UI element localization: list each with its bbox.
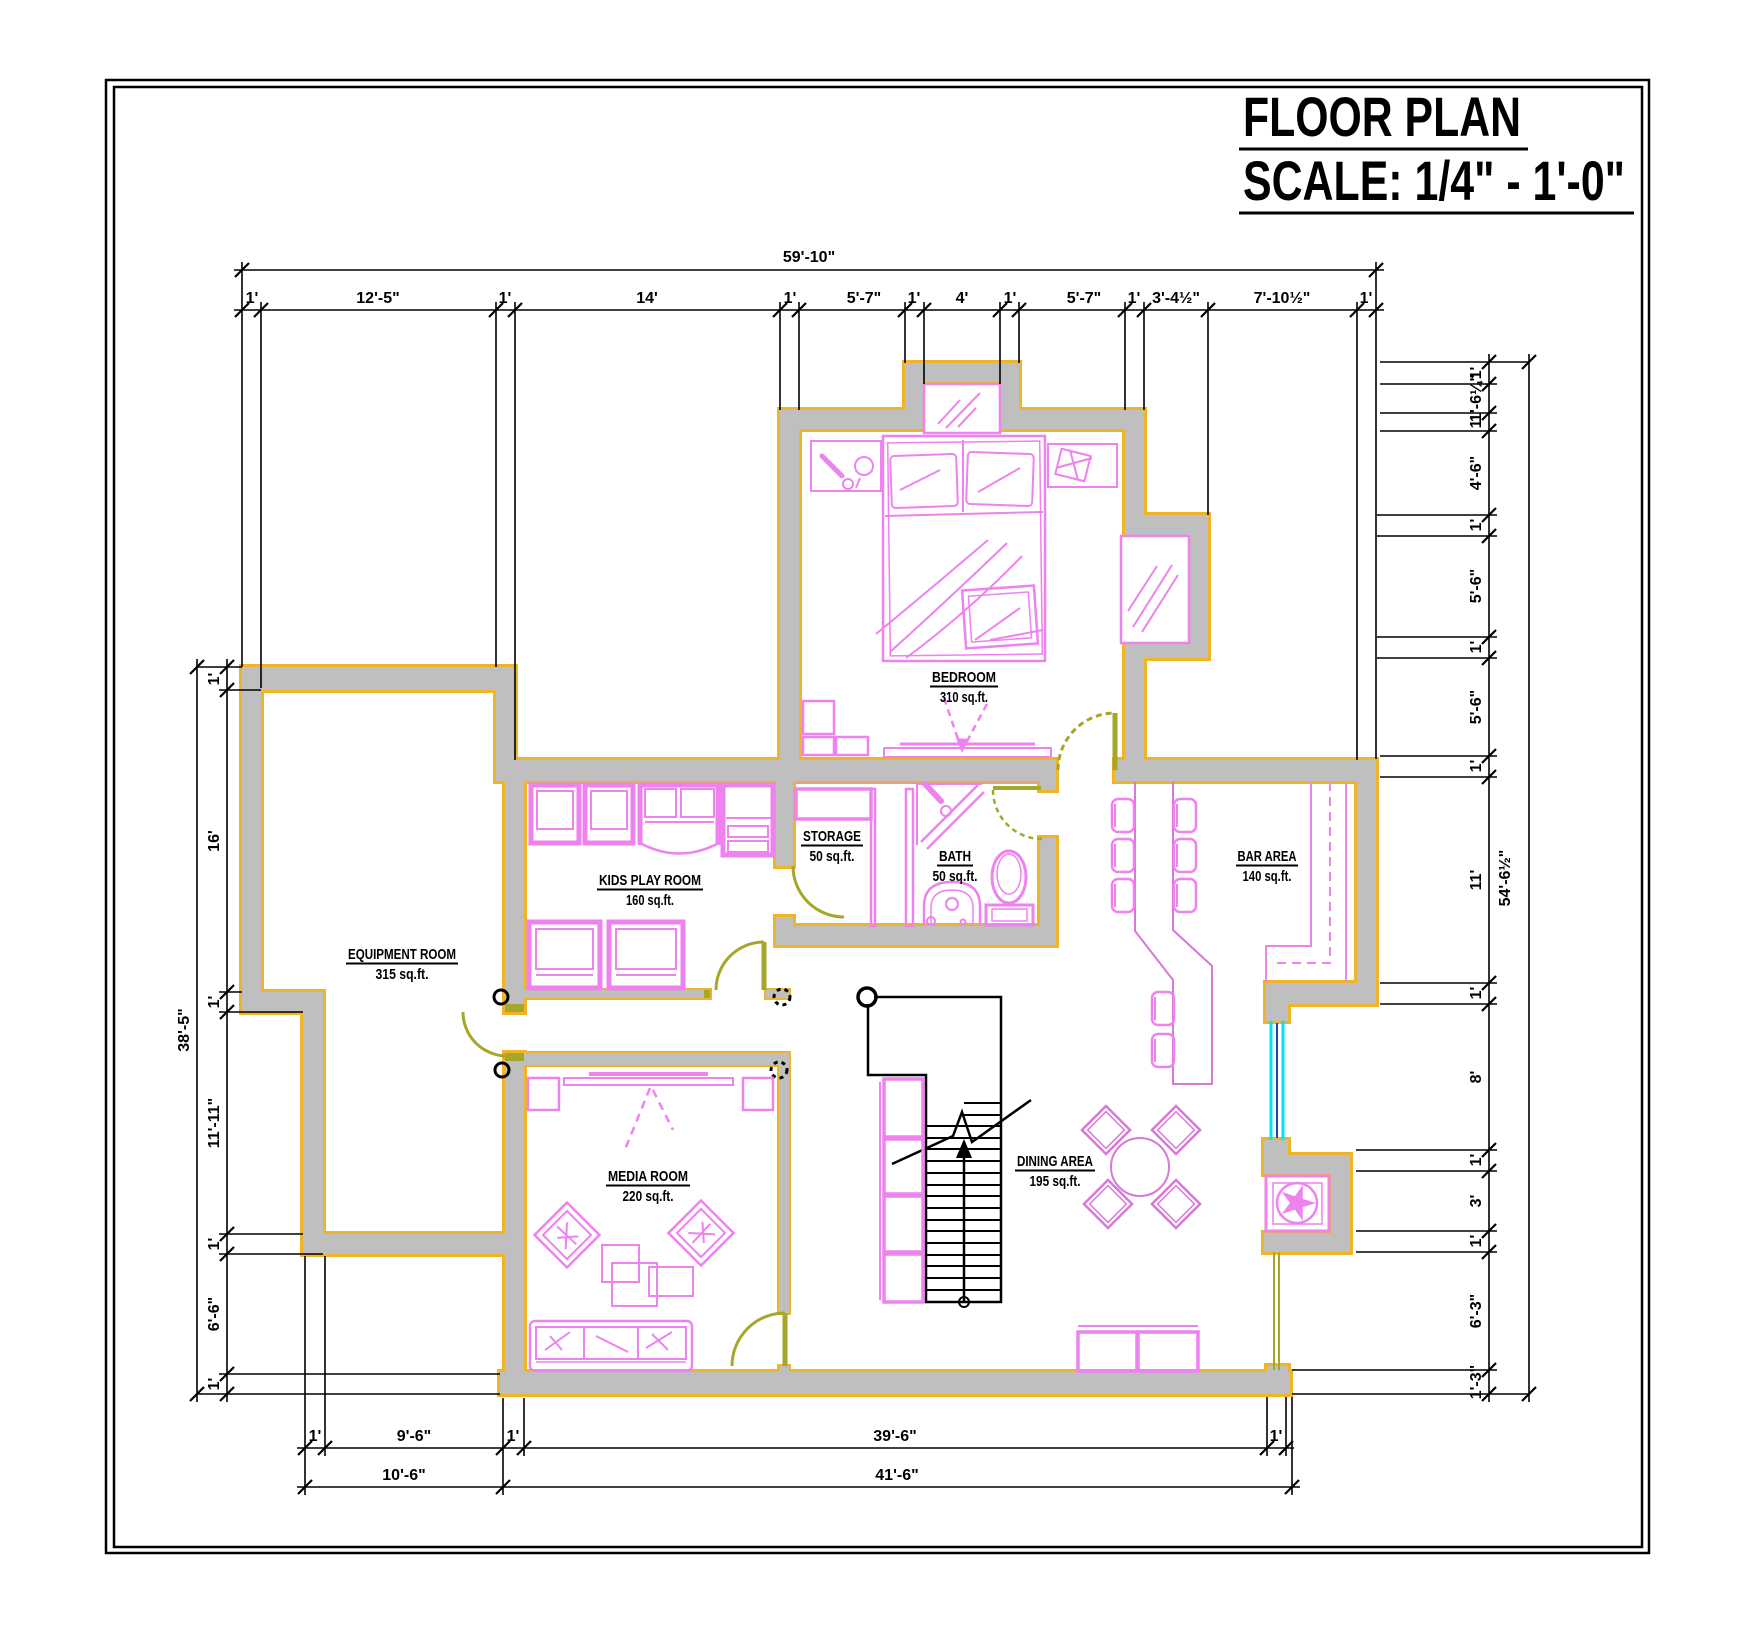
svg-text:54'-6½": 54'-6½" [1497, 850, 1514, 907]
svg-text:59'-10": 59'-10" [783, 249, 835, 266]
svg-text:1'-6¼": 1'-6¼" [1468, 374, 1485, 422]
svg-text:KIDS PLAY ROOM: KIDS PLAY ROOM [599, 872, 701, 889]
svg-text:5'-6": 5'-6" [1468, 569, 1485, 604]
svg-text:39'-6": 39'-6" [873, 1428, 916, 1445]
svg-text:EQUIPMENT ROOM: EQUIPMENT ROOM [348, 946, 456, 963]
svg-text:1': 1' [507, 1428, 520, 1445]
svg-text:11'-11": 11'-11" [206, 1098, 223, 1149]
svg-text:1': 1' [1468, 519, 1485, 532]
svg-text:BAR AREA: BAR AREA [1238, 848, 1297, 865]
svg-text:1': 1' [784, 290, 797, 307]
svg-text:1'-3": 1'-3" [1468, 1365, 1485, 1400]
svg-text:50 sq.ft.: 50 sq.ft. [933, 868, 978, 885]
svg-text:12'-5": 12'-5" [356, 290, 399, 307]
svg-text:1': 1' [309, 1428, 322, 1445]
svg-text:195 sq.ft.: 195 sq.ft. [1030, 1173, 1081, 1190]
svg-text:160 sq.ft.: 160 sq.ft. [626, 892, 674, 909]
svg-text:10'-6": 10'-6" [382, 1467, 425, 1484]
svg-text:41'-6": 41'-6" [875, 1467, 918, 1484]
svg-text:1': 1' [1360, 290, 1373, 307]
svg-text:1': 1' [206, 1238, 223, 1251]
svg-text:50 sq.ft.: 50 sq.ft. [810, 848, 855, 865]
svg-text:FLOOR PLAN: FLOOR PLAN [1243, 85, 1521, 148]
svg-text:5'-6": 5'-6" [1468, 690, 1485, 725]
svg-text:3'-4½": 3'-4½" [1152, 290, 1200, 307]
svg-text:1': 1' [246, 290, 259, 307]
svg-text:310 sq.ft.: 310 sq.ft. [940, 689, 988, 706]
svg-text:1': 1' [1270, 1428, 1283, 1445]
svg-text:STORAGE: STORAGE [803, 828, 861, 845]
svg-text:1': 1' [1468, 1154, 1485, 1167]
svg-text:3': 3' [1468, 1195, 1485, 1208]
svg-text:1': 1' [1468, 416, 1485, 429]
svg-text:6'-6": 6'-6" [206, 1297, 223, 1332]
svg-text:315 sq.ft.: 315 sq.ft. [376, 966, 429, 983]
svg-text:9'-6": 9'-6" [397, 1428, 432, 1445]
svg-text:4': 4' [956, 290, 969, 307]
svg-text:1': 1' [1004, 290, 1017, 307]
svg-text:1': 1' [206, 673, 223, 686]
svg-text:1': 1' [908, 290, 921, 307]
svg-text:38'-5": 38'-5" [176, 1008, 193, 1051]
svg-text:220 sq.ft.: 220 sq.ft. [623, 1188, 674, 1205]
svg-text:DINING AREA: DINING AREA [1017, 1153, 1093, 1170]
svg-text:1': 1' [1468, 641, 1485, 654]
svg-text:BATH: BATH [939, 848, 971, 865]
svg-text:1': 1' [206, 1378, 223, 1391]
svg-text:7'-10½": 7'-10½" [1254, 290, 1311, 307]
svg-text:6'-3": 6'-3" [1468, 1294, 1485, 1329]
svg-text:8': 8' [1468, 1071, 1485, 1084]
svg-text:4'-6": 4'-6" [1468, 456, 1485, 491]
svg-text:1': 1' [1468, 760, 1485, 773]
svg-text:1': 1' [1468, 987, 1485, 1000]
svg-text:140 sq.ft.: 140 sq.ft. [1243, 868, 1292, 885]
svg-text:1': 1' [1468, 1235, 1485, 1248]
svg-text:MEDIA ROOM: MEDIA ROOM [608, 1168, 688, 1185]
svg-text:1': 1' [499, 290, 512, 307]
svg-text:BEDROOM: BEDROOM [932, 669, 996, 686]
svg-text:SCALE: 1/4" - 1'-0": SCALE: 1/4" - 1'-0" [1243, 149, 1625, 212]
svg-text:1': 1' [1128, 290, 1141, 307]
svg-text:16': 16' [206, 830, 223, 852]
svg-text:14': 14' [636, 290, 658, 307]
svg-text:11': 11' [1468, 870, 1485, 891]
svg-text:5'-7": 5'-7" [1067, 290, 1102, 307]
svg-text:1': 1' [206, 996, 223, 1009]
svg-text:5'-7": 5'-7" [847, 290, 882, 307]
